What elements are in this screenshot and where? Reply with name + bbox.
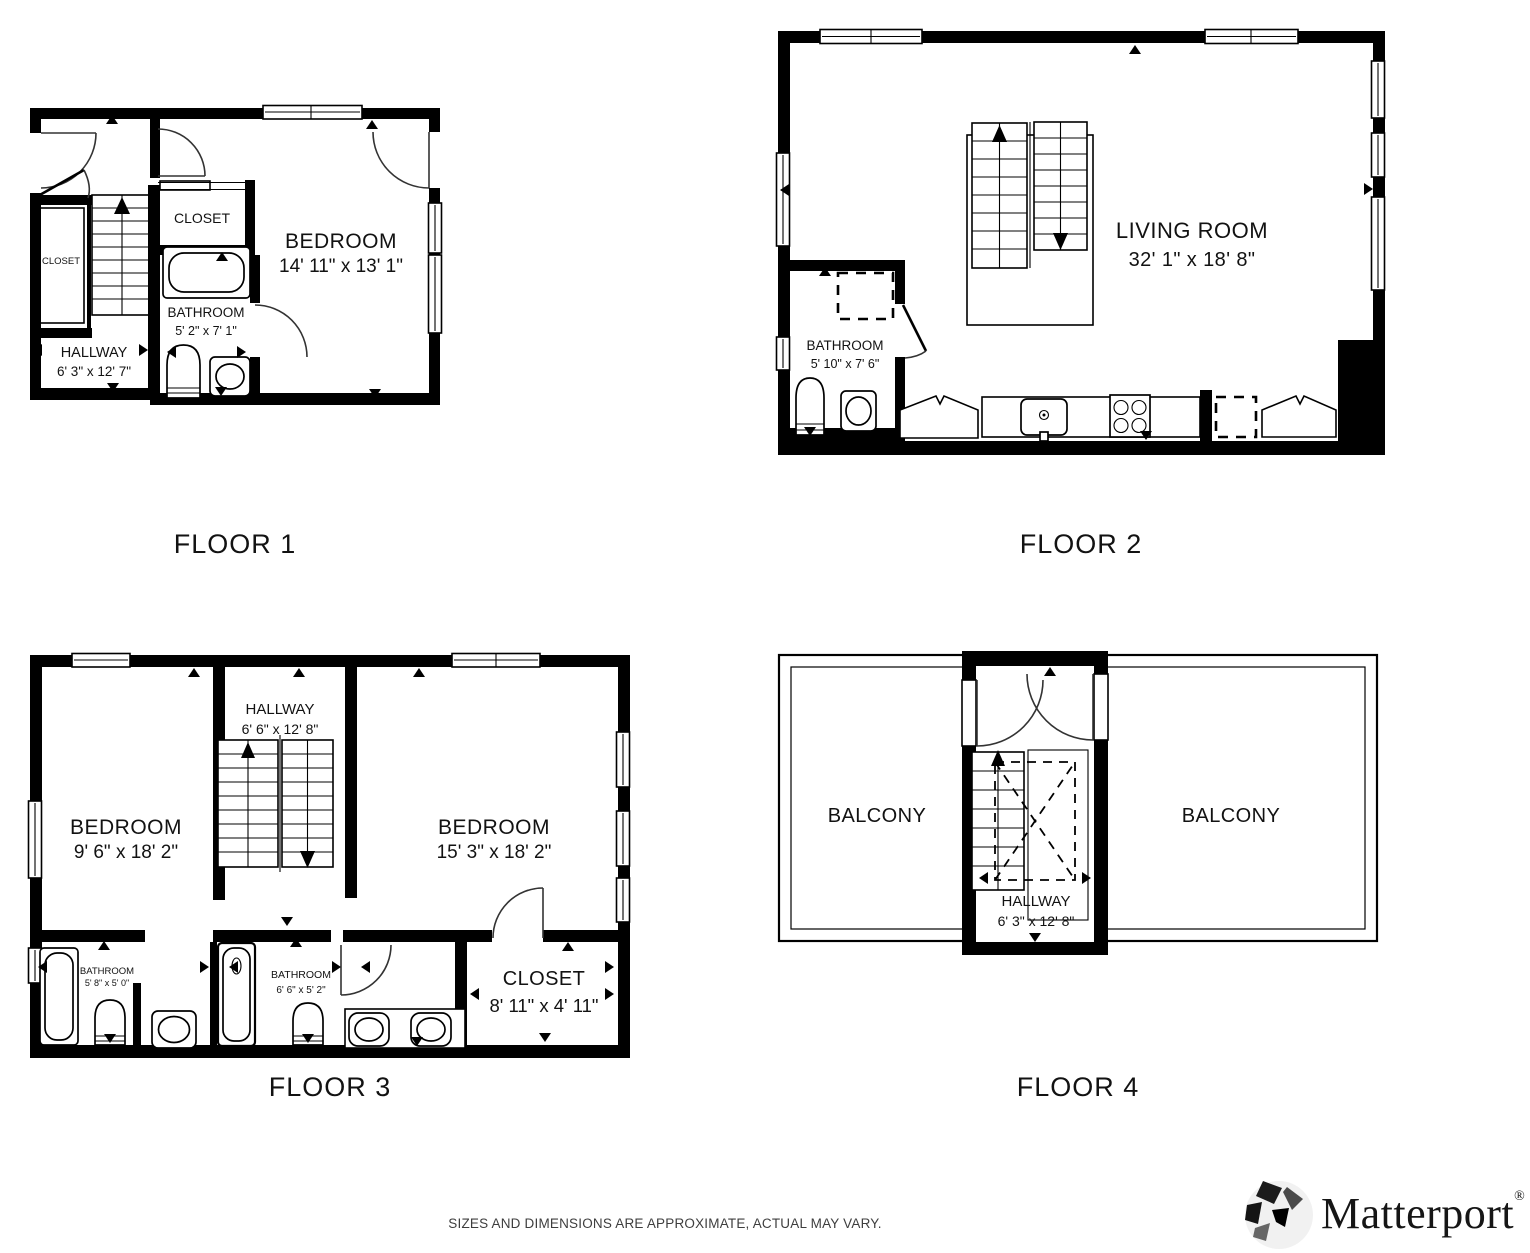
floor1-windows — [263, 106, 442, 334]
living-room-label: LIVING ROOM — [1116, 218, 1268, 243]
bathtub-icon — [218, 943, 255, 1046]
floor-1-plan: CLOSET CLOSET BEDROOM 14' 11" x 13' 1" B… — [25, 95, 445, 410]
bedroom-dims: 14' 11" x 13' 1" — [279, 256, 403, 277]
hallway-dims: 6' 3" x 12' 7" — [57, 364, 131, 379]
bathroom-mid-dims: 6' 6" x 5' 2" — [276, 985, 326, 996]
bathroom-label: BATHROOM — [807, 338, 884, 353]
door-jamb — [962, 680, 976, 746]
matterport-wordmark: Matterport — [1321, 1179, 1514, 1249]
shower-dashed — [838, 273, 893, 319]
bathroom-dims: 5' 2" x 7' 1" — [175, 324, 237, 338]
bathroom-label: BATHROOM — [168, 305, 245, 320]
matterport-logo-icon — [1243, 1179, 1315, 1251]
floorplan-sheet: CLOSET CLOSET BEDROOM 14' 11" x 13' 1" B… — [0, 0, 1530, 1253]
closet-side-label: CLOSET — [42, 256, 80, 267]
balcony-left-label: BALCONY — [828, 805, 926, 827]
hallway-dims: 6' 3" x 12' 8" — [998, 913, 1075, 929]
floor-4-plan: BALCONY BALCONY HALLWAY 6' 3" x 12' 8" — [770, 645, 1385, 970]
bathtub-icon — [163, 247, 250, 298]
bathroom-left-label: BATHROOM — [80, 966, 134, 977]
closet-label: CLOSET — [503, 968, 585, 990]
kitchen-sink-icon — [1021, 399, 1067, 441]
kitchen-corner-counter — [900, 396, 978, 438]
bedroom-right-label: BEDROOM — [438, 816, 550, 839]
sink-icon — [152, 1011, 196, 1048]
bedroom-left-label: BEDROOM — [70, 816, 182, 839]
balcony-right-label: BALCONY — [1182, 805, 1280, 827]
bathroom-door-leaf — [903, 305, 926, 351]
floor1-stairs — [92, 195, 152, 315]
appliance-dashed — [1216, 397, 1256, 437]
matterport-logo: Matterport ® — [1243, 1179, 1525, 1251]
floor-1-title: FLOOR 1 — [174, 529, 297, 560]
floor-3-drawing: HALLWAY 6' 6" x 12' 8" BEDROOM 9' 6" x 1… — [25, 645, 637, 1063]
stairs-up-arrow — [114, 197, 130, 214]
bedroom-right-dims: 15' 3" x 18' 2" — [437, 842, 552, 863]
living-room-dims: 32' 1" x 18' 8" — [1129, 249, 1256, 271]
floor-3-title: FLOOR 3 — [269, 1072, 392, 1103]
bathroom-dims: 5' 10" x 7' 6" — [811, 357, 880, 371]
hallway-label: HALLWAY — [61, 345, 128, 361]
floor-2-drawing: LIVING ROOM 32' 1" x 18' 8" BATHROOM 5' … — [770, 25, 1390, 460]
bathroom-left-dims: 5' 8" x 5' 0" — [85, 978, 129, 988]
registered-mark: ® — [1514, 1189, 1525, 1205]
floor-2-title: FLOOR 2 — [1020, 529, 1143, 560]
floor3-stairs — [218, 735, 333, 872]
double-vanity — [345, 1009, 465, 1048]
kitchen-counter — [982, 397, 1200, 437]
floor-4-drawing: BALCONY BALCONY HALLWAY 6' 3" x 12' 8" — [770, 645, 1385, 970]
floor-3-plan: HALLWAY 6' 6" x 12' 8" BEDROOM 9' 6" x 1… — [25, 645, 637, 1063]
toilet-icon — [796, 378, 824, 435]
closet-label: CLOSET — [174, 210, 230, 226]
kitchen-corner-counter — [1262, 396, 1336, 437]
floor2-stairs — [967, 122, 1093, 325]
floor-2-plan: LIVING ROOM 32' 1" x 18' 8" BATHROOM 5' … — [770, 25, 1390, 460]
disclaimer-text: SIZES AND DIMENSIONS ARE APPROXIMATE, AC… — [448, 1216, 881, 1231]
closet-dims: 8' 11" x 4' 11" — [490, 995, 599, 1016]
door-jamb — [1094, 674, 1108, 740]
bathroom-mid-label: BATHROOM — [271, 969, 331, 981]
floor2-kitchen — [900, 395, 1336, 441]
closet-bifold-door — [158, 181, 245, 190]
bedroom-label: BEDROOM — [285, 230, 397, 253]
floor-4-title: FLOOR 4 — [1017, 1072, 1140, 1103]
sink-icon — [210, 357, 250, 396]
hallway-dims: 6' 6" x 12' 8" — [242, 721, 319, 737]
stove-icon — [1110, 395, 1150, 437]
floor-1-drawing: CLOSET CLOSET BEDROOM 14' 11" x 13' 1" B… — [25, 95, 445, 410]
sink-icon — [841, 391, 876, 431]
hallway-label: HALLWAY — [246, 701, 315, 718]
hallway-label: HALLWAY — [1002, 893, 1071, 910]
bedroom-left-dims: 9' 6" x 18' 2" — [74, 842, 178, 863]
